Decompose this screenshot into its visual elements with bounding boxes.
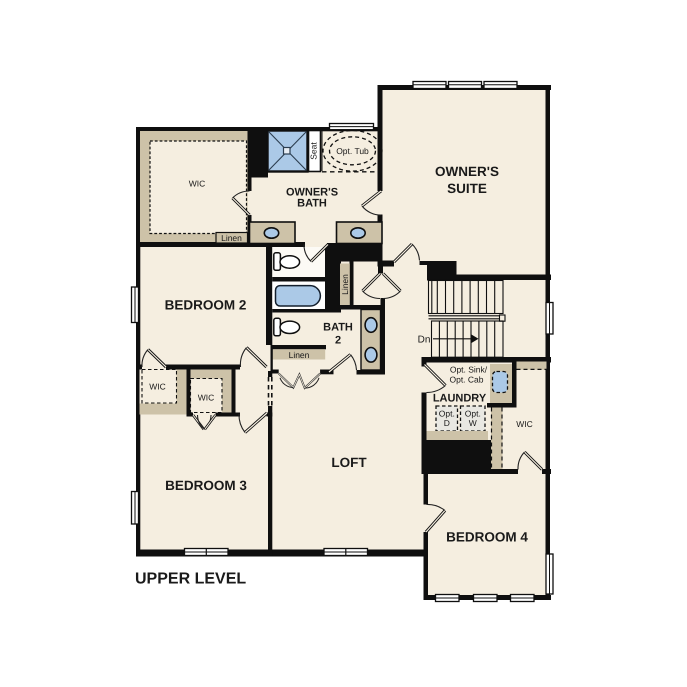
svg-text:Opt. Tub: Opt. Tub [336,146,369,156]
svg-text:BEDROOM 3: BEDROOM 3 [165,478,247,493]
svg-text:WIC: WIC [149,382,166,392]
svg-text:D: D [444,418,450,428]
svg-text:WIC: WIC [516,419,533,429]
svg-text:Linen: Linen [340,274,350,295]
svg-text:Dn: Dn [418,335,431,346]
svg-text:BATH: BATH [297,198,327,210]
svg-text:Opt. Sink/: Opt. Sink/ [450,365,488,375]
svg-text:WIC: WIC [198,393,215,403]
svg-text:BEDROOM 4: BEDROOM 4 [446,530,528,545]
svg-text:Opt. Cab: Opt. Cab [449,375,483,385]
svg-text:WIC: WIC [189,179,206,189]
svg-text:Linen: Linen [289,350,310,360]
svg-text:Opt.: Opt. [439,409,455,419]
svg-text:2: 2 [335,335,341,347]
svg-text:SUITE: SUITE [447,181,487,196]
svg-text:Opt.: Opt. [465,409,481,419]
svg-text:UPPER LEVEL: UPPER LEVEL [135,571,246,588]
svg-text:LOFT: LOFT [331,455,367,470]
svg-text:Seat: Seat [309,142,319,160]
svg-text:W: W [469,418,477,428]
svg-text:BATH: BATH [323,322,353,334]
svg-text:Linen: Linen [221,233,242,243]
svg-text:BEDROOM 2: BEDROOM 2 [165,298,247,313]
svg-text:LAUNDRY: LAUNDRY [433,393,487,405]
svg-text:OWNER'S: OWNER'S [435,164,499,179]
